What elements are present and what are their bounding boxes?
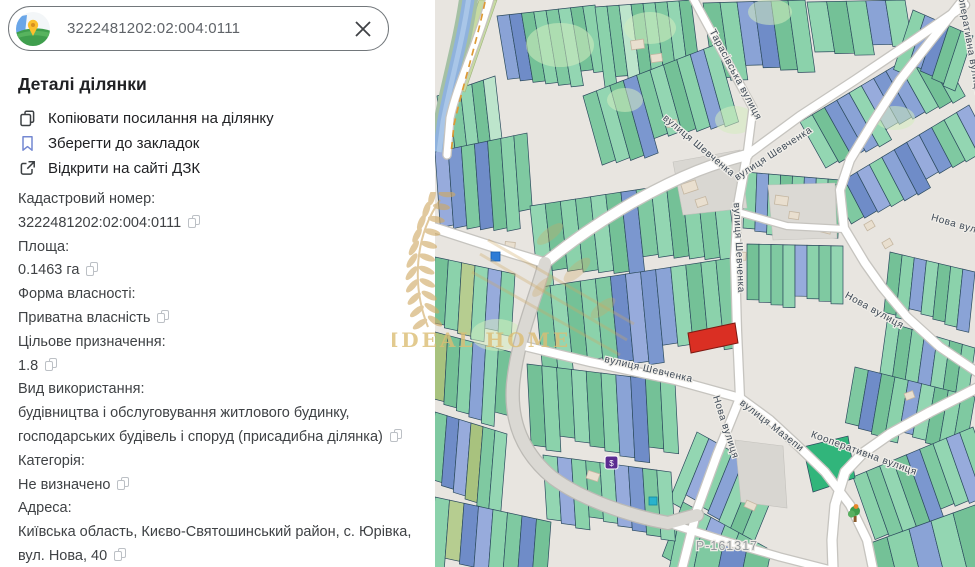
actions-list: Копіювати посилання на ділянку Зберегти … [18, 106, 274, 181]
teal-poi-marker[interactable] [649, 497, 657, 505]
field-label: Форма власності: [18, 283, 422, 307]
field-value: Не визначено [18, 477, 110, 493]
field-value: будівництва і обслуговування житлового б… [18, 405, 383, 445]
copy-value-icon[interactable] [45, 358, 58, 373]
search-input[interactable]: 3222481202:02:004:0111 [67, 20, 352, 37]
app-window: 3222481202:02:004:0111 Деталі ділянки Ко… [0, 0, 975, 567]
cadastral-map[interactable]: $ вулиця Шевченка вулиця Шевченка Тарасі… [435, 0, 975, 567]
action-label: Копіювати посилання на ділянку [48, 110, 274, 127]
field-label: Кадастровий номер: [18, 188, 422, 212]
open-dzk-button[interactable]: Відкрити на сайті ДЗК [18, 156, 274, 181]
bookmark-icon [18, 134, 37, 153]
details-panel: 3222481202:02:004:0111 Деталі ділянки Ко… [0, 0, 435, 567]
field-label: Адреса: [18, 497, 422, 521]
copy-value-icon[interactable] [188, 215, 201, 230]
parcel-fields: Кадастровий номер: 3222481202:02:004:011… [18, 188, 422, 567]
save-bookmark-button[interactable]: Зберегти до закладок [18, 131, 274, 156]
field-area: Площа: 0.1463 га [18, 236, 422, 284]
close-icon[interactable] [352, 18, 374, 40]
blue-poi-marker[interactable] [491, 252, 500, 261]
action-label: Зберегти до закладок [48, 135, 199, 152]
field-address: Адреса: Київська область, Києво-Святошин… [18, 497, 422, 567]
copy-value-icon[interactable] [390, 429, 403, 444]
map-ref-code: Р-161317 [696, 539, 758, 553]
field-label: Цільове призначення: [18, 331, 422, 355]
app-logo-icon [15, 11, 51, 47]
page-title: Деталі ділянки [18, 74, 147, 95]
copy-value-icon[interactable] [86, 262, 99, 277]
field-category: Категорія: Не визначено [18, 450, 422, 498]
copy-link-icon [18, 109, 37, 128]
copy-value-icon[interactable] [114, 548, 127, 563]
field-value: 0.1463 га [18, 262, 79, 278]
search-bar[interactable]: 3222481202:02:004:0111 [8, 6, 389, 51]
svg-text:$: $ [609, 459, 614, 468]
field-value: 3222481202:02:004:0111 [18, 215, 181, 231]
copy-value-icon[interactable] [157, 310, 170, 325]
field-value: Київська область, Києво-Святошинський ра… [18, 524, 411, 564]
field-label: Вид використання: [18, 378, 422, 402]
purple-poi-marker[interactable]: $ [605, 456, 618, 469]
field-label: Площа: [18, 236, 422, 260]
field-label: Категорія: [18, 450, 422, 474]
field-use-type: Вид використання: будівництва і обслугов… [18, 378, 422, 449]
copy-value-icon[interactable] [117, 477, 130, 492]
field-cadastral-number: Кадастровий номер: 3222481202:02:004:011… [18, 188, 422, 236]
field-value: 1.8 [18, 358, 38, 374]
field-ownership: Форма власності: Приватна власність [18, 283, 422, 331]
field-value: Приватна власність [18, 310, 150, 326]
copy-parcel-link-button[interactable]: Копіювати посилання на ділянку [18, 106, 274, 131]
external-link-icon [18, 159, 37, 178]
field-purpose: Цільове призначення: 1.8 [18, 331, 422, 379]
action-label: Відкрити на сайті ДЗК [48, 160, 200, 177]
